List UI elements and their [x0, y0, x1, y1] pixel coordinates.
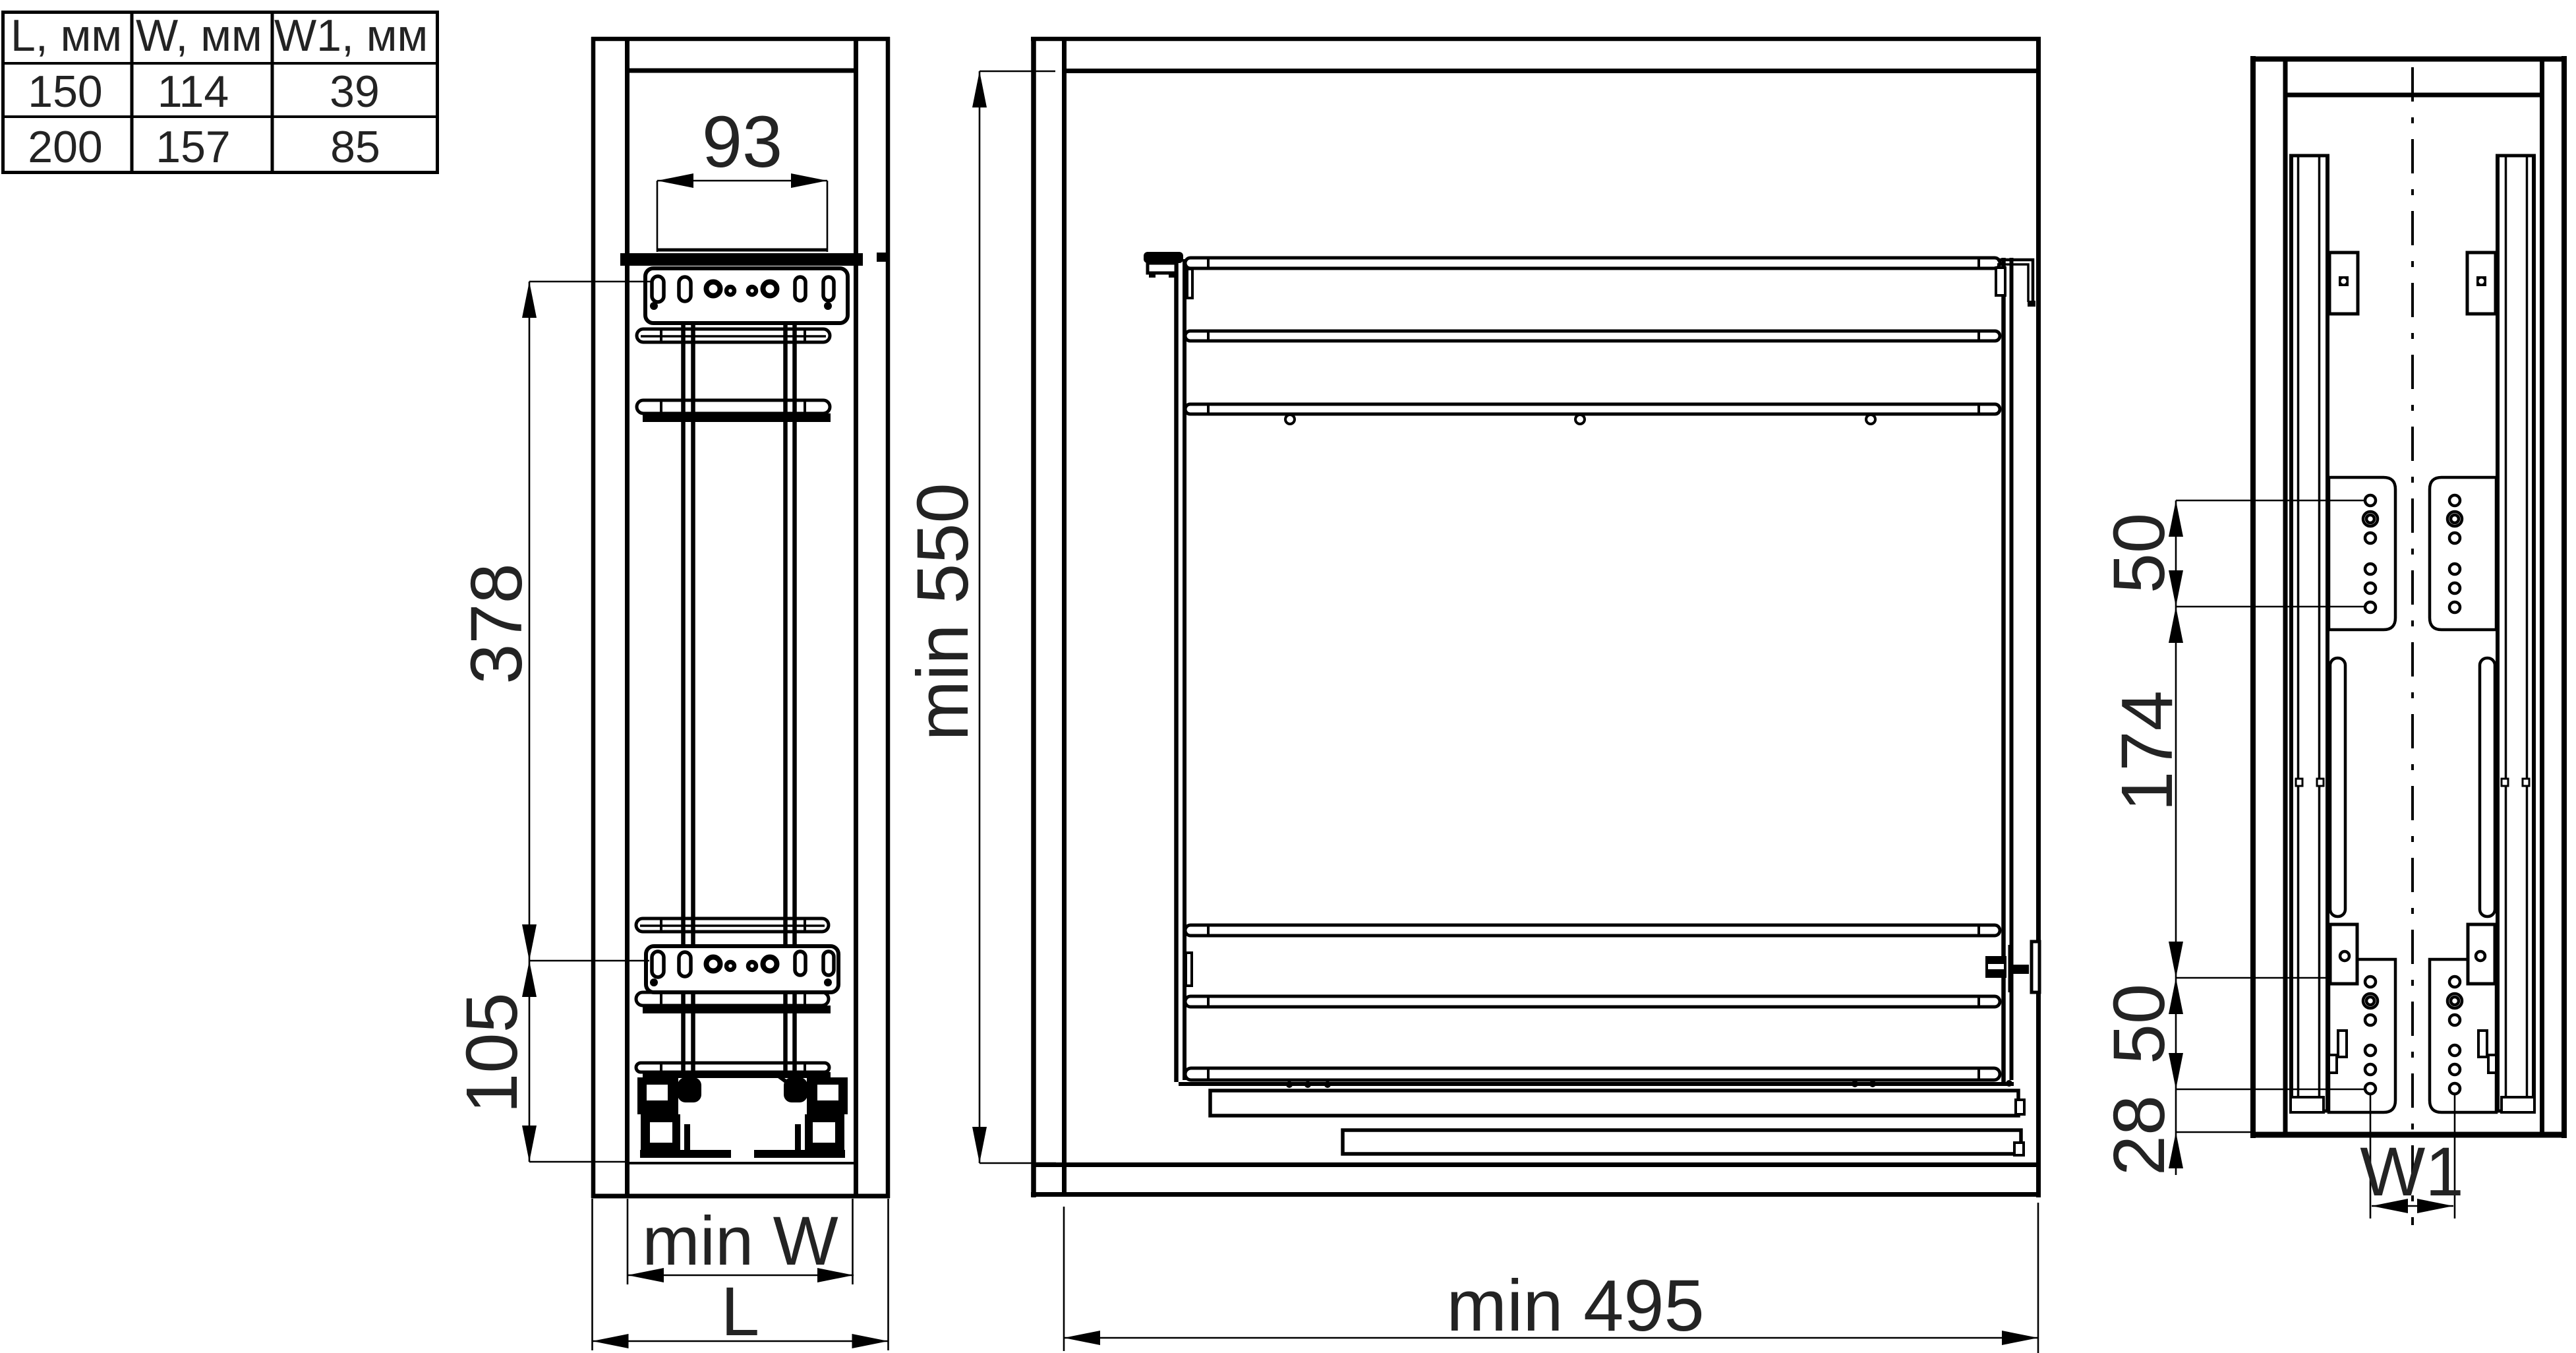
svg-text:28: 28 — [2099, 1095, 2180, 1176]
svg-text:min 495: min 495 — [1446, 1265, 1704, 1346]
svg-text:min W: min W — [642, 1203, 838, 1280]
svg-text:157: 157 — [156, 122, 230, 172]
svg-text:174: 174 — [2107, 690, 2188, 812]
svg-text:W1: W1 — [2360, 1133, 2464, 1211]
svg-text:50: 50 — [2099, 513, 2180, 593]
svg-text:W, мм: W, мм — [136, 11, 262, 61]
svg-text:105: 105 — [452, 992, 533, 1114]
svg-text:L, мм: L, мм — [11, 11, 122, 61]
svg-text:200: 200 — [28, 122, 102, 172]
svg-text:85: 85 — [330, 122, 380, 172]
svg-text:378: 378 — [456, 563, 537, 684]
svg-text:93: 93 — [702, 102, 782, 183]
svg-text:min 550: min 550 — [902, 483, 983, 740]
svg-text:W1, мм: W1, мм — [274, 11, 428, 61]
svg-text:50: 50 — [2099, 984, 2180, 1064]
svg-text:114: 114 — [158, 67, 229, 117]
svg-text:150: 150 — [28, 67, 102, 117]
svg-text:L: L — [721, 1273, 759, 1350]
svg-text:39: 39 — [330, 67, 380, 117]
